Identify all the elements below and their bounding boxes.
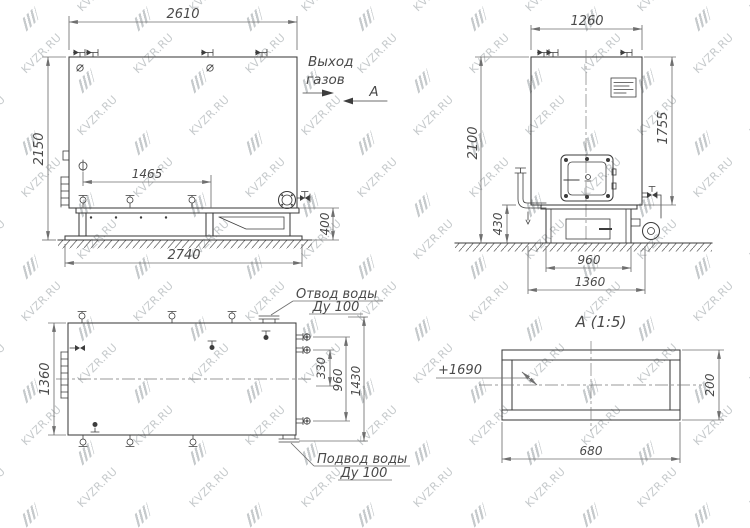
burner-flange: [279, 192, 311, 209]
nameplate: [611, 78, 636, 97]
blower-fan: [643, 223, 660, 240]
dim-1755: 1755: [656, 111, 671, 144]
dim-1260: 1260: [570, 14, 603, 29]
base-furnace: [541, 205, 637, 243]
gas-outlet-text-1: Выход: [308, 54, 354, 70]
dim-960-plan: 960: [331, 368, 345, 391]
boiler-technical-drawing: 2610 2150 1465 400 2740 Выход газов: [0, 0, 750, 500]
plan-inner-fittings: [61, 331, 270, 432]
dim-330: 330: [314, 357, 328, 379]
right-valve-and-blower: [631, 187, 661, 240]
detail-a-title: А (1:5): [575, 313, 627, 331]
front-view: 1260 2100 1755 430 960 1360: [455, 14, 712, 294]
dim-1360-plan: 1360: [38, 362, 53, 395]
gas-outlet-label: Выход газов: [303, 54, 354, 97]
dim-400: 400: [318, 212, 332, 235]
kvzr-logo-watermark: [583, 502, 599, 527]
kvzr-logo-watermark: [471, 502, 487, 527]
dim-200: 200: [703, 373, 717, 396]
dim-1360-front: 1360: [575, 275, 606, 289]
boiler-body-front: [531, 57, 642, 205]
plan-view: Отвод воды Ду 100 Подвод воды Ду 100 136…: [38, 287, 410, 481]
drain-valve-icons: [79, 196, 196, 208]
level-mark: +1690: [436, 363, 537, 385]
safety-valve-icons-top: [74, 50, 268, 72]
dim-960: 960: [578, 253, 601, 267]
dim-430: 430: [491, 212, 505, 235]
dim-680: 680: [580, 444, 603, 458]
level-value: +1690: [438, 363, 482, 378]
detail-dimensions: 200 680: [502, 350, 724, 463]
front-dimensions: 1260 2100 1755 430 960 1360: [466, 14, 676, 294]
weld-mark-icon: [77, 65, 213, 71]
water-inlet-dn: Ду 100: [340, 466, 388, 481]
water-inlet-flange: Подвод воды Ду 100: [279, 435, 410, 481]
kvzr-logo-watermark: [695, 502, 711, 527]
front-top-valves: [538, 50, 633, 58]
side-view: 2610 2150 1465 400 2740 Выход газов: [32, 7, 387, 267]
gas-outlet-frame: [479, 341, 702, 431]
section-a-marker: А: [343, 84, 387, 104]
support-frame: [65, 208, 302, 240]
water-inlet-label: Подвод воды: [317, 452, 407, 467]
kvzr-logo-watermark: [23, 502, 39, 527]
kvzr-logo-watermark: [247, 502, 263, 527]
side-valve-icon: [297, 192, 310, 203]
boiler-body-side: [69, 57, 297, 208]
dim-1430: 1430: [349, 365, 363, 396]
dim-1465: 1465: [132, 167, 163, 181]
detail-a-view: А (1:5) +1690 200 680: [436, 313, 724, 463]
water-outlet-dn: Ду 100: [312, 300, 360, 315]
gas-outlet-text-2: газов: [306, 72, 345, 88]
section-letter: А: [368, 84, 378, 100]
kvzr-logo-watermark: [359, 502, 375, 527]
dim-2740: 2740: [167, 248, 200, 263]
furnace-door: [561, 155, 616, 201]
ground-front: [455, 243, 712, 252]
dim-2150: 2150: [32, 132, 47, 165]
kvzr-logo-watermark: [135, 502, 151, 527]
side-dimensions: 2610 2150 1465 400 2740: [32, 7, 339, 267]
dim-2610: 2610: [166, 7, 199, 22]
dim-2100: 2100: [466, 126, 481, 159]
